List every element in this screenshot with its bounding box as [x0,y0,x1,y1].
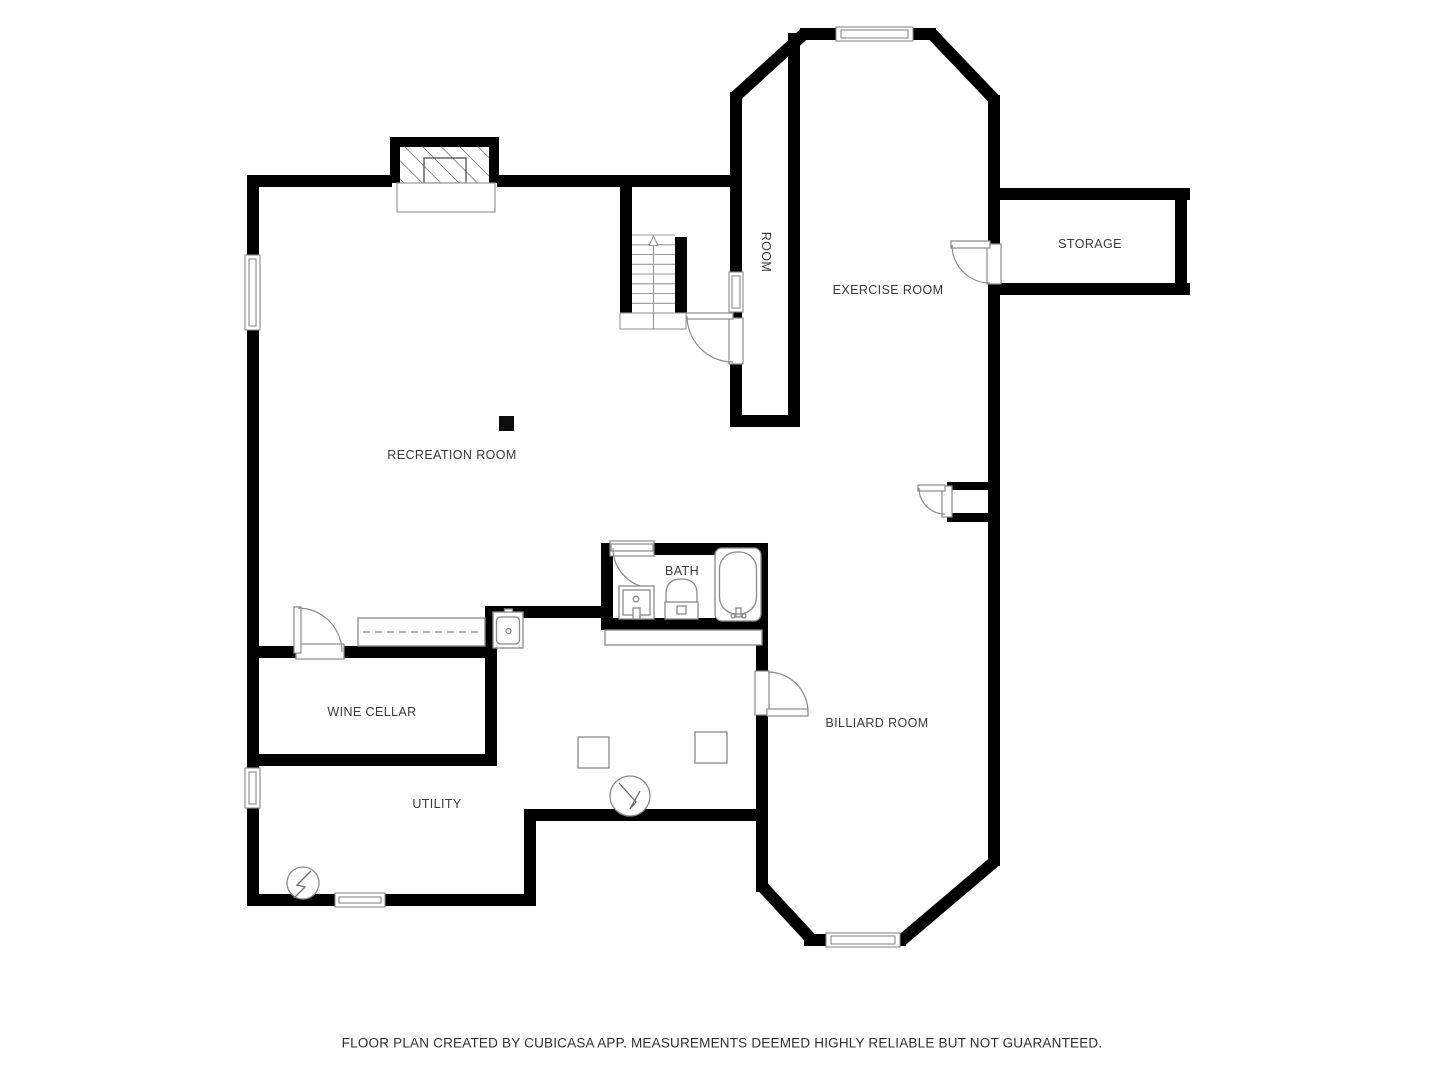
floor-plan-drawing [0,0,1440,1080]
bath-sink-icon [619,586,654,619]
bathtub-icon [715,548,761,621]
door-recreation-to-room [685,313,743,364]
electrical-panel-icon [287,867,319,899]
window-left-upper [245,255,260,330]
door-passage-stub [918,485,952,517]
fireplace-icon [390,137,499,212]
stairs-up-arrow-icon [649,236,658,262]
room-label-storage: STORAGE [1058,237,1122,251]
door-billiard [755,671,808,716]
window-room-corridor [729,272,743,312]
hearth [397,183,495,212]
room-label-utility: UTILITY [412,797,461,811]
room-label-billiard: BILLIARD ROOM [825,716,928,730]
room-label-room: ROOM [759,232,773,273]
room-label-exercise: EXERCISE ROOM [833,283,944,297]
counter-strip [605,630,762,645]
floor-plan-page: RECREATION ROOM ROOM EXERCISE ROOM STORA… [0,0,1440,1080]
window-billiard-bay [826,933,900,947]
walls [247,28,1190,946]
door-storage [951,241,1001,284]
room-label-wine-cellar: WINE CELLAR [327,705,416,719]
washer-icon [578,737,609,768]
utility-sink-icon [493,609,523,648]
door-bath [610,541,654,588]
dryer-icon [695,732,727,763]
window-exercise-bay [836,27,913,41]
room-label-recreation: RECREATION ROOM [387,448,516,462]
window-left-lower [245,768,260,808]
room-label-bath: BATH [665,564,699,578]
toilet-icon [665,579,698,619]
water-heater-icon [610,776,650,816]
column [499,416,514,431]
counter-cabinet [358,618,485,646]
door-wine-cellar [294,607,344,659]
footer-disclaimer: FLOOR PLAN CREATED BY CUBICASA APP. MEAS… [342,1036,1103,1051]
window-bottom [335,893,385,907]
